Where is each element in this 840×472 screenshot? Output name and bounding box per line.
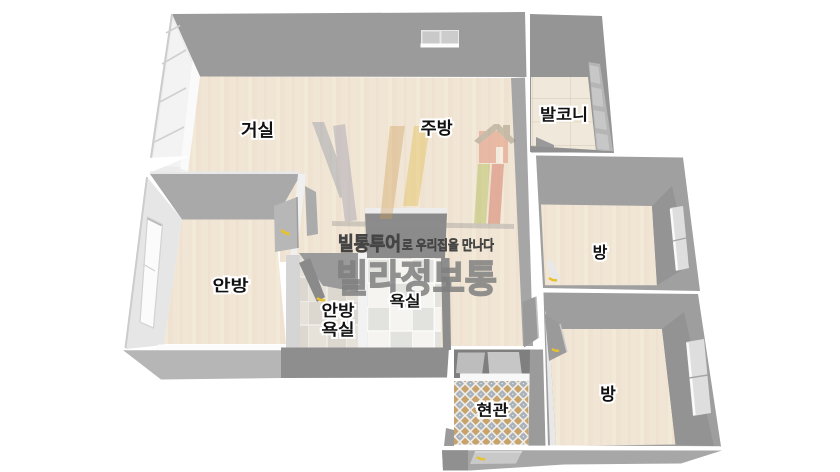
- svg-text:안방: 안방: [322, 302, 355, 320]
- svg-text:빌통투어: 빌통투어: [338, 233, 401, 255]
- svg-text:로 우리집을 만나다: 로 우리집을 만나다: [402, 237, 494, 253]
- svg-text:욕실: 욕실: [322, 321, 355, 339]
- svg-text:거실: 거실: [241, 121, 274, 140]
- svg-text:안방: 안방: [213, 277, 249, 295]
- svg-text:현관: 현관: [477, 401, 509, 420]
- svg-text:욕실: 욕실: [390, 293, 421, 310]
- svg-text:방: 방: [600, 385, 616, 404]
- svg-text:주방: 주방: [421, 119, 453, 138]
- svg-text:방: 방: [593, 244, 608, 262]
- svg-text:발코니: 발코니: [540, 106, 588, 124]
